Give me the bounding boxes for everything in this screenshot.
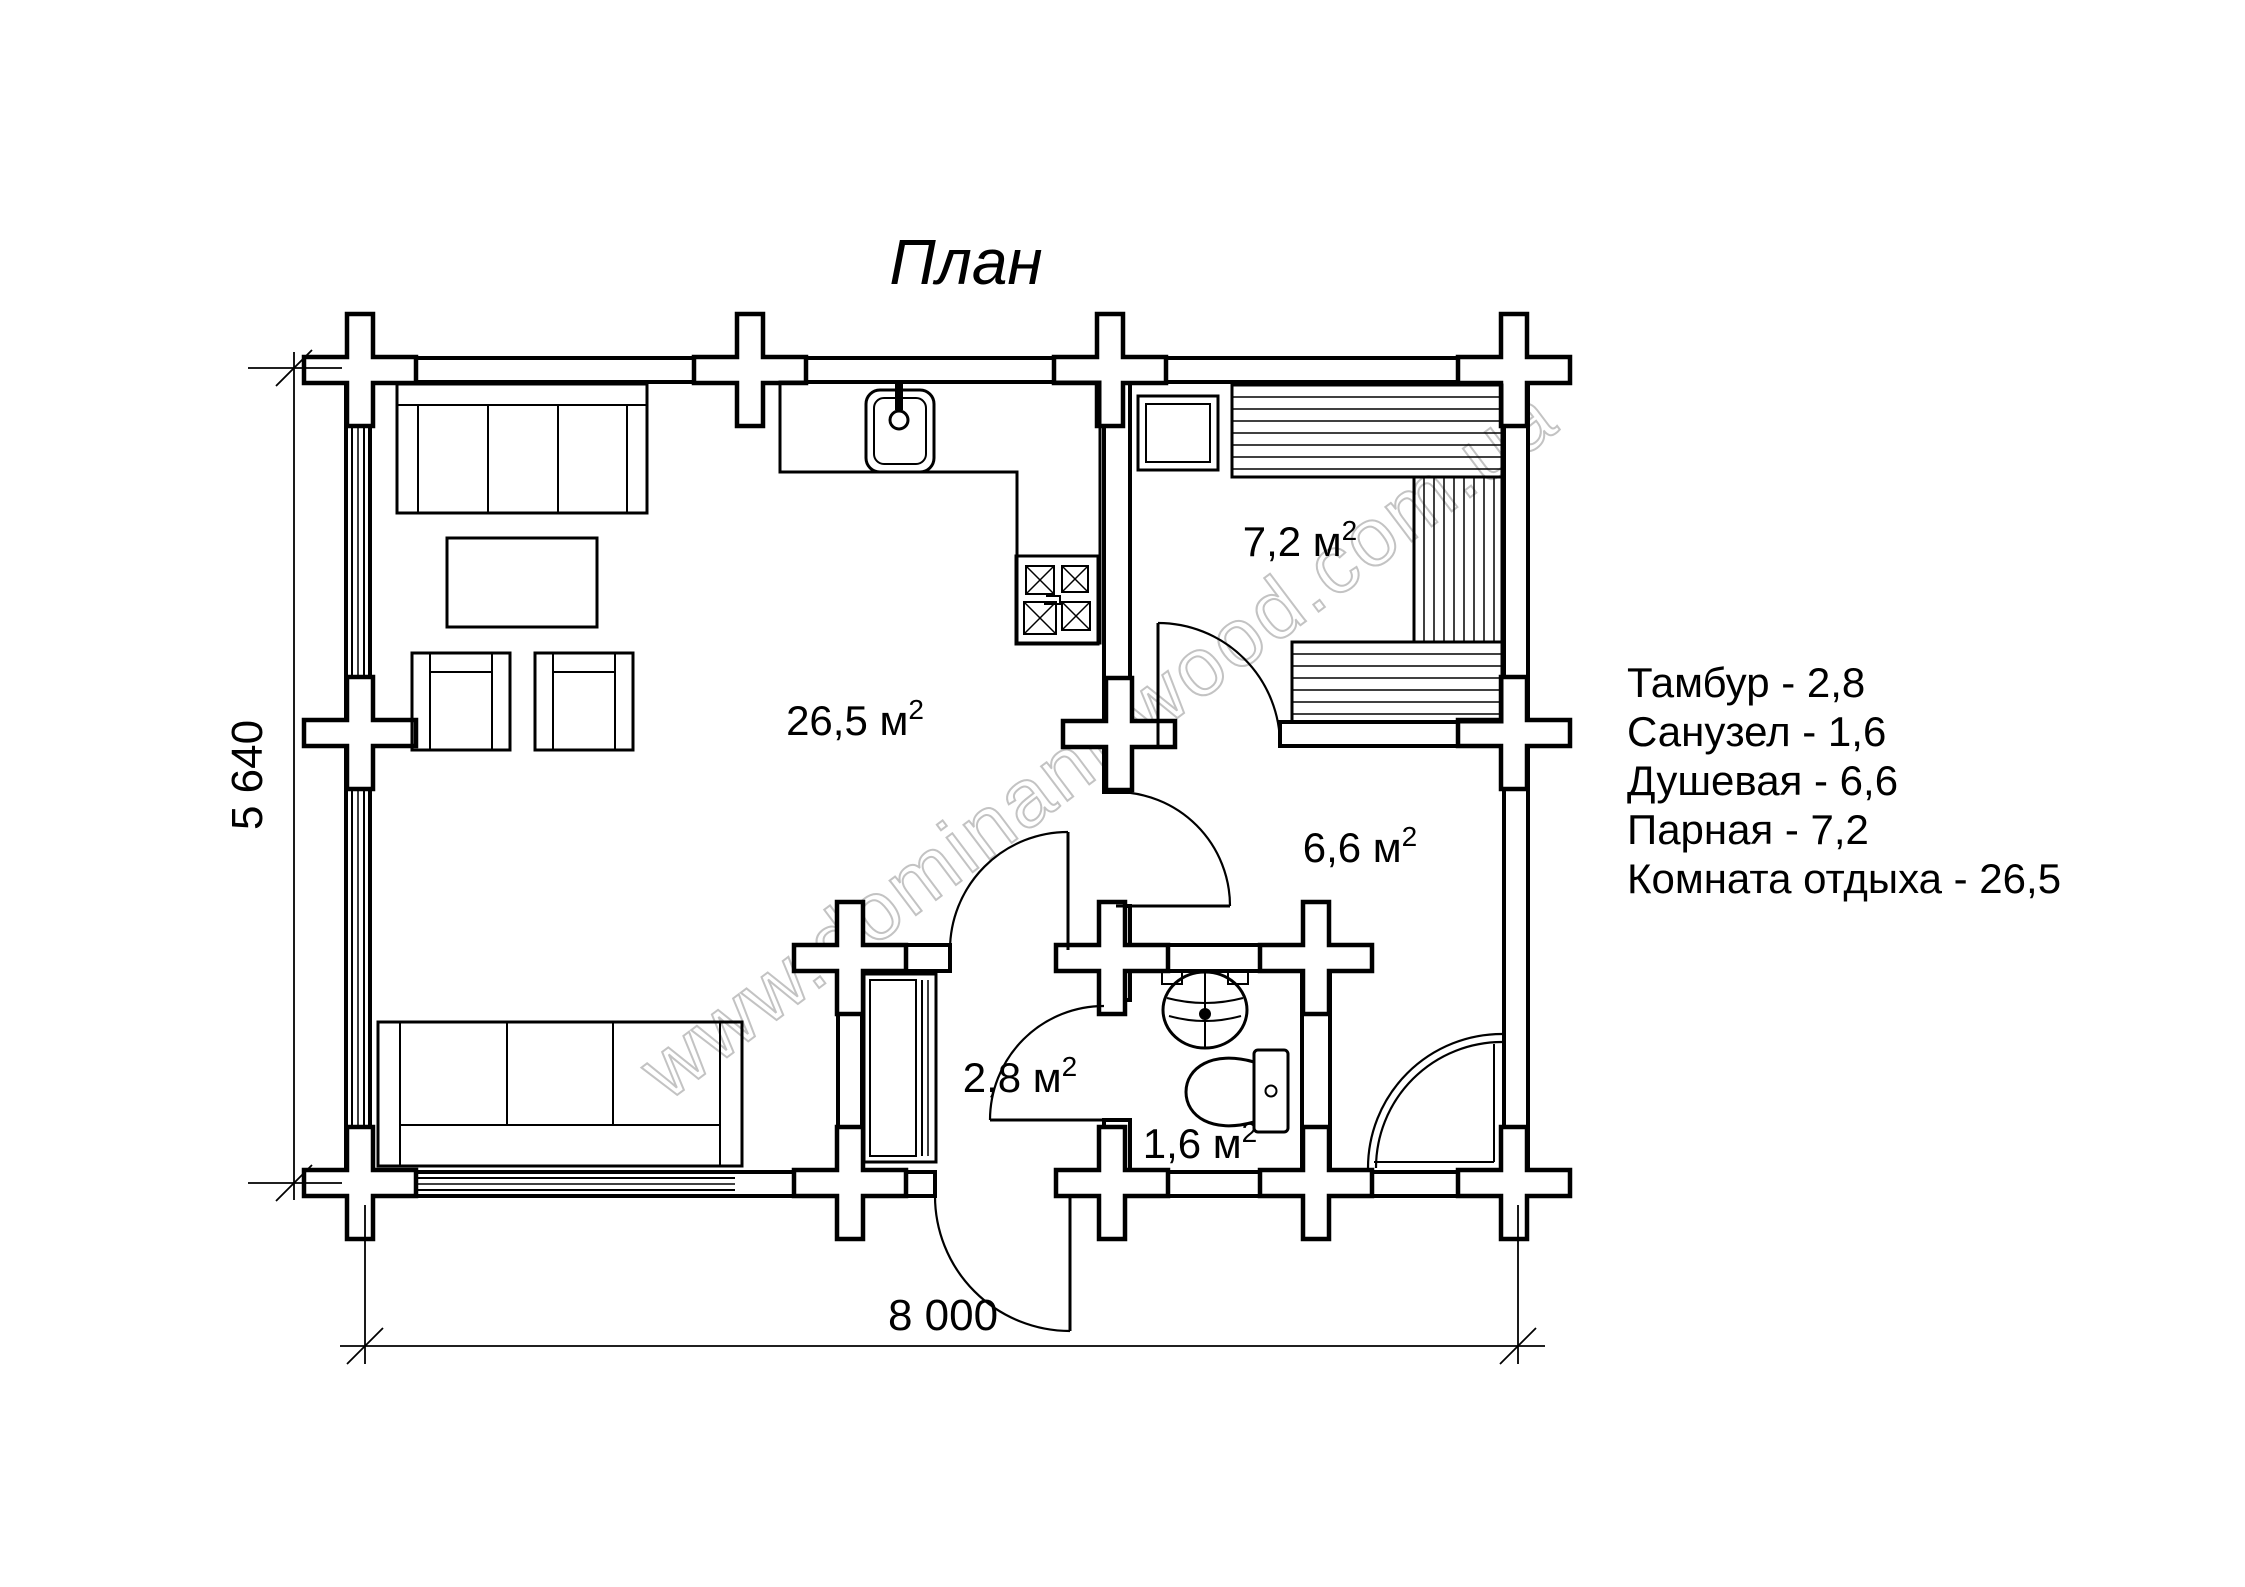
armchair-right	[535, 653, 633, 750]
room-label-shower: 6,6 м2	[1303, 821, 1418, 871]
wardrobe	[864, 974, 936, 1162]
log-joint-cross	[794, 1127, 906, 1239]
kitchen-sink	[866, 384, 934, 472]
log-joint-cross	[1056, 902, 1168, 1014]
wash-basin	[1162, 972, 1248, 1048]
coffee-table	[447, 538, 597, 627]
faucet-icon	[895, 384, 903, 410]
stove	[1016, 556, 1098, 644]
wall-top	[348, 358, 1528, 382]
dimension-width-label: 8 000	[888, 1291, 998, 1340]
legend-item: Санузел - 1,6	[1627, 708, 1886, 755]
kitchen	[780, 382, 1100, 644]
room-label-wc: 1,6 м2	[1143, 1117, 1258, 1167]
log-joint-cross	[304, 314, 416, 426]
floor-plan-page: План www.dominant-wood.com.ua	[0, 0, 2245, 1587]
log-joint-cross	[304, 677, 416, 789]
log-joint-cross	[1458, 677, 1570, 789]
page-title: План	[889, 226, 1042, 298]
sauna-bench-bottom	[1292, 642, 1502, 722]
room-label-vestibule: 2,8 м2	[963, 1051, 1078, 1101]
floor-plan-drawing: План www.dominant-wood.com.ua	[0, 0, 2245, 1587]
room-label-living: 26,5 м2	[786, 694, 924, 744]
legend: Тамбур - 2,8 Санузел - 1,6 Душевая - 6,6…	[1627, 659, 2061, 902]
legend-item: Комната отдыха - 26,5	[1627, 855, 2061, 902]
shower-cabin	[1368, 1034, 1502, 1168]
legend-item: Тамбур - 2,8	[1627, 659, 1865, 706]
log-joint-cross	[1054, 314, 1166, 426]
room-label-steam: 7,2 м2	[1243, 515, 1358, 565]
log-joint-cross	[1260, 902, 1372, 1014]
log-joint-cross	[1260, 1127, 1372, 1239]
armchair-left	[412, 653, 510, 750]
dimension-height-label: 5 640	[223, 720, 272, 830]
log-joint-cross	[694, 314, 806, 426]
legend-item: Душевая - 6,6	[1627, 757, 1898, 804]
sofa-top	[397, 384, 647, 513]
log-joint-cross	[1458, 1127, 1570, 1239]
dimension-vertical: 5 640	[223, 350, 342, 1201]
legend-item: Парная - 7,2	[1627, 806, 1869, 853]
dimension-horizontal: 8 000	[340, 1205, 1545, 1364]
sauna-heater	[1138, 396, 1218, 470]
door-living-shower	[1116, 792, 1230, 906]
